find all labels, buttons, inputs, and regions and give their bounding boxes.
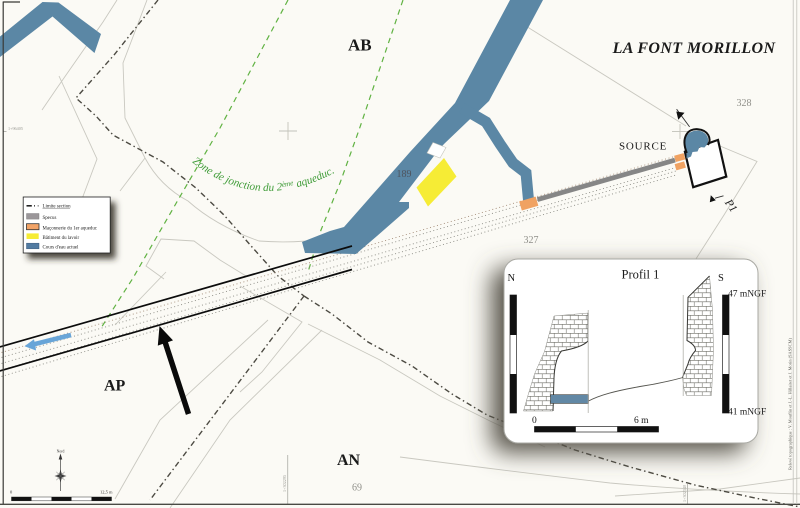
svg-text:Nord: Nord: [57, 450, 65, 454]
svg-text:Bâtiment du lavoir: Bâtiment du lavoir: [43, 236, 80, 241]
svg-text:AN: AN: [337, 452, 361, 469]
svg-text:47 mNGF: 47 mNGF: [728, 290, 766, 300]
svg-text:AB: AB: [348, 36, 372, 55]
svg-text:69: 69: [352, 483, 362, 494]
svg-text:6 m: 6 m: [634, 416, 649, 426]
svg-text:328: 328: [737, 98, 752, 109]
svg-text:Relevé topographique : V. Mouf: Relevé topographique : V. Mouflin et J.-…: [788, 338, 793, 470]
svg-text:Maçonnerie du 1er aqueduc: Maçonnerie du 1er aqueduc: [43, 226, 98, 231]
svg-text:Cours d'eau actuel: Cours d'eau actuel: [43, 246, 80, 251]
svg-text:1+302340: 1+302340: [682, 485, 687, 502]
svg-text:N: N: [508, 273, 516, 284]
svg-text:1+96405: 1+96405: [8, 126, 23, 131]
svg-text:AP: AP: [104, 378, 126, 395]
svg-text:0: 0: [532, 416, 537, 426]
svg-text:327: 327: [524, 235, 539, 246]
svg-text:S: S: [718, 273, 724, 284]
svg-text:189: 189: [397, 169, 412, 180]
svg-text:1+302295: 1+302295: [282, 475, 287, 492]
svg-text:LA FONT MORILLON: LA FONT MORILLON: [612, 40, 777, 57]
svg-text:41 mNGF: 41 mNGF: [728, 408, 766, 418]
svg-text:Profil 1: Profil 1: [622, 268, 660, 282]
svg-text:SOURCE: SOURCE: [619, 141, 667, 153]
svg-text:Specus: Specus: [43, 216, 57, 221]
